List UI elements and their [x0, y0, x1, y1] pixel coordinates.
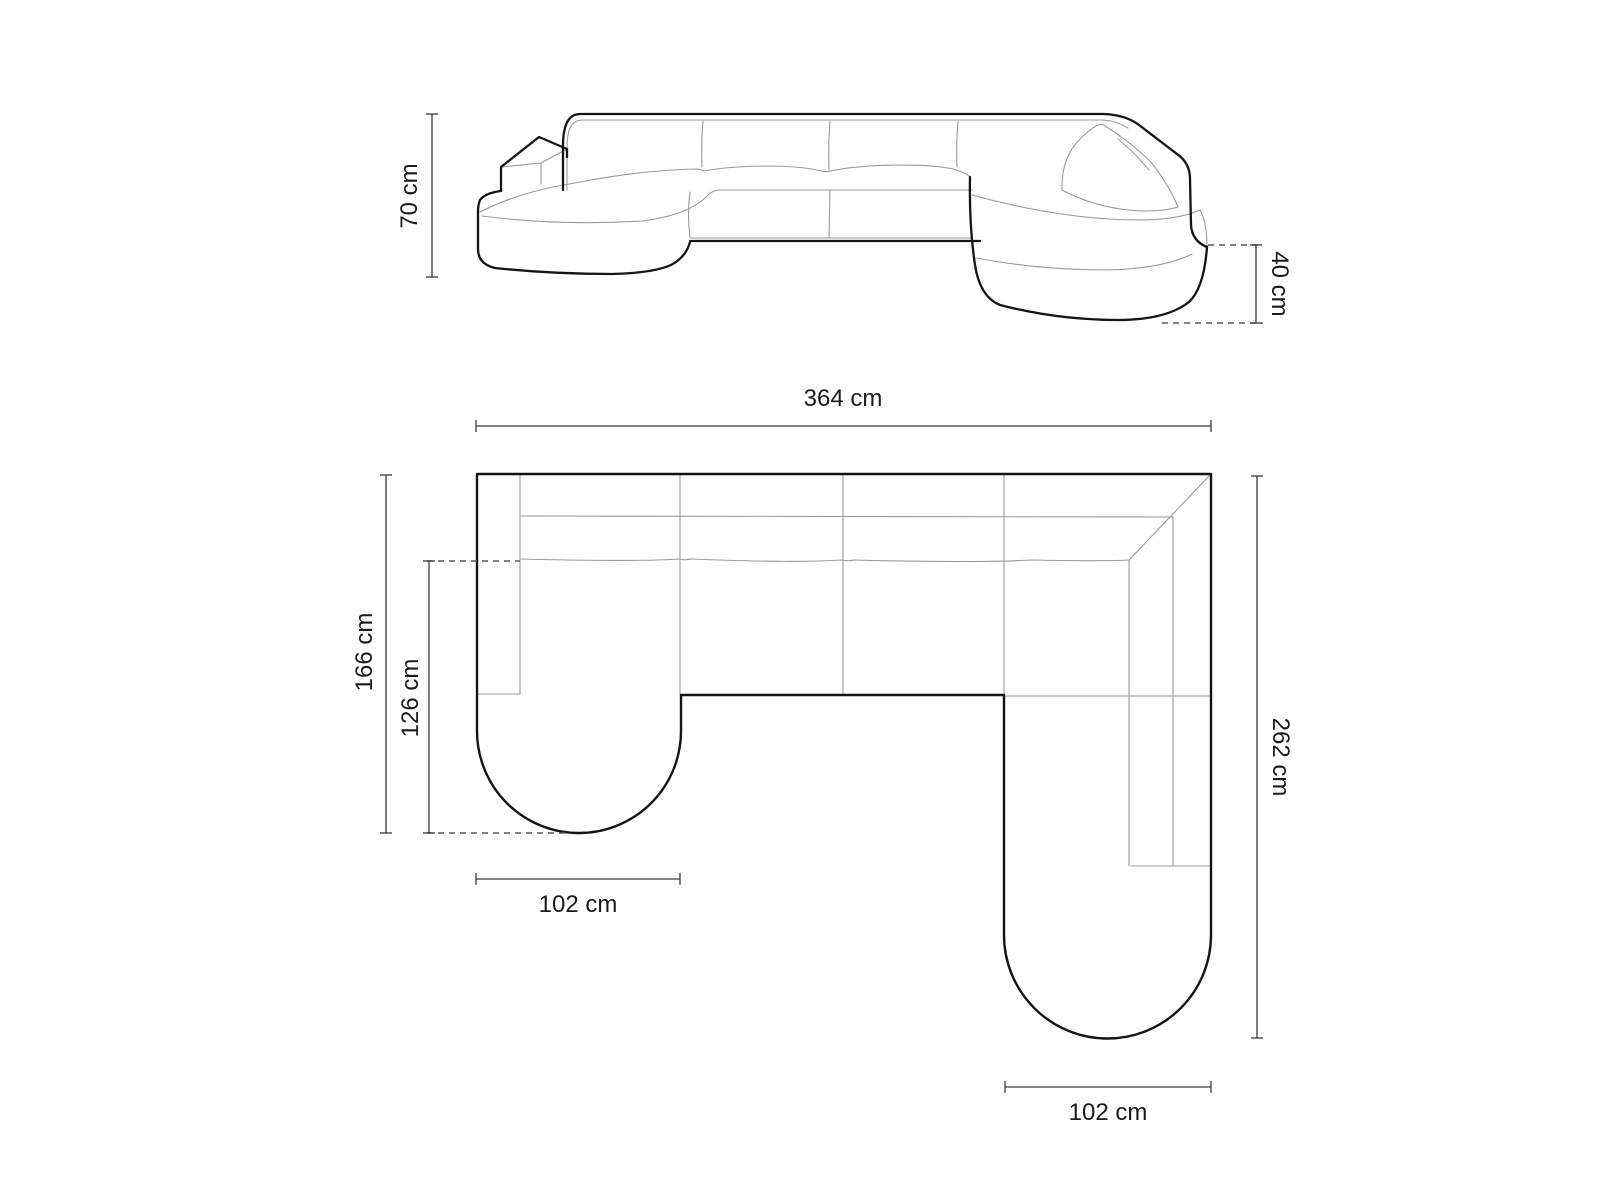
plan-view: [477, 474, 1211, 1039]
dashed-extension-lines: [427, 245, 1263, 833]
dim-line-left-chaise-width: [476, 873, 680, 885]
elevation-back-cushion-division: [1118, 139, 1149, 170]
dim-line-left-depth: [380, 475, 392, 833]
elevation-back-cushion-left-edge: [1062, 124, 1102, 190]
dim-label-total-width: 364 cm: [804, 385, 883, 413]
elevation-seat-cushion-top-line: [480, 165, 970, 212]
elevation-seat-band-left-edge: [689, 192, 691, 238]
elevation-backrest-divider-1: [702, 121, 703, 167]
elevation-detail-lines: [480, 120, 1207, 270]
plan-backrest-front-line: [520, 516, 1173, 517]
dim-label-height: 70 cm: [396, 163, 424, 228]
elevation-view: [478, 114, 1207, 320]
elevation-right-chaise-rim-line: [972, 195, 1207, 247]
elevation-backrest-divider-3: [957, 121, 958, 167]
elevation-right-chaise-outline: [970, 177, 1207, 320]
dim-line-right-depth: [1251, 476, 1263, 1038]
elevation-backrest-divider-2: [829, 121, 830, 170]
dim-label-right-depth: 262 cm: [1266, 718, 1294, 797]
plan-sofa-outline: [477, 474, 1211, 1039]
dim-label-right-chaise-width: 102 cm: [1069, 1099, 1148, 1127]
elevation-back-cushion-right-edge: [1150, 161, 1178, 207]
elevation-seat-band-divider: [829, 190, 830, 238]
dim-label-left-inner-depth: 126 cm: [397, 659, 425, 738]
dim-line-right-chaise-width: [1005, 1081, 1211, 1093]
elevation-back-cushion-bottom-edge: [1062, 190, 1178, 211]
diagram-linework: [0, 0, 1600, 1200]
elevation-back-cushion-top-edge: [1102, 124, 1150, 161]
sofa-dimension-diagram: 70 cm 40 cm 364 cm 166 cm 126 cm 262 cm …: [0, 0, 1600, 1200]
dim-label-chaise-height: 40 cm: [1265, 251, 1293, 316]
elevation-backrest-outline: [563, 114, 1207, 247]
dim-label-left-chaise-width: 102 cm: [539, 891, 618, 919]
elevation-left-chaise-outline: [478, 191, 690, 274]
elevation-backrest-inner-top-line: [567, 120, 1128, 190]
dim-line-height: [426, 114, 438, 277]
elevation-left-chaise-rim-line: [482, 190, 972, 223]
dim-label-left-depth: 166 cm: [351, 613, 379, 692]
plan-seat-front-line: [520, 559, 1129, 562]
dim-line-total-width: [476, 420, 1211, 432]
elevation-outline: [478, 114, 1207, 320]
plan-detail-lines: [477, 474, 1211, 866]
dimension-lines: [380, 114, 1263, 1093]
dim-line-chaise-height: [1250, 245, 1262, 323]
elevation-right-chaise-front-seam: [976, 254, 1192, 270]
plan-outline: [477, 474, 1211, 1039]
